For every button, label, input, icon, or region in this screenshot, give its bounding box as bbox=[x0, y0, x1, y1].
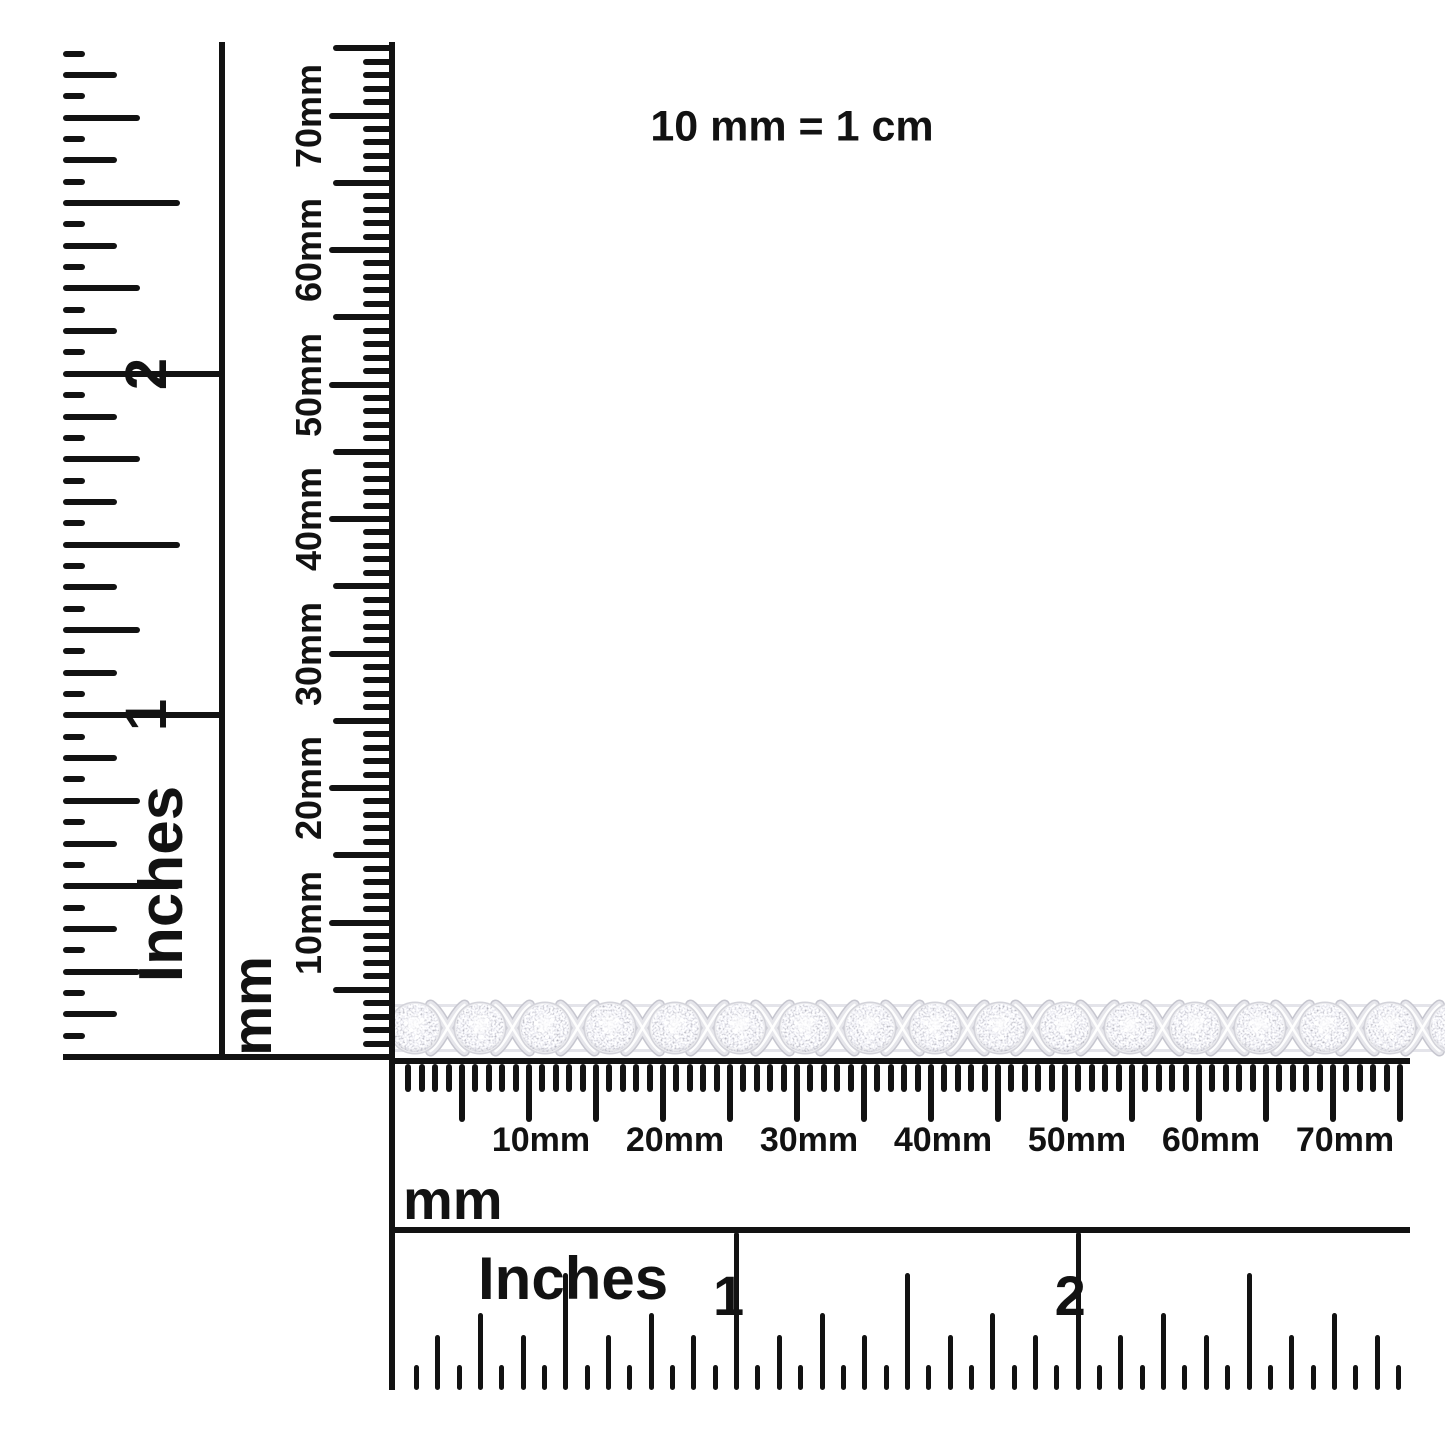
ruler-tick bbox=[1182, 1365, 1187, 1390]
ruler-tick bbox=[862, 1335, 867, 1390]
inch-number: 1 bbox=[118, 699, 176, 731]
ruler-tick bbox=[1140, 1365, 1145, 1390]
ruler-tick bbox=[798, 1365, 803, 1390]
ruler-tick bbox=[647, 1064, 653, 1092]
mm-tick-label: 50mm bbox=[291, 332, 327, 436]
ruler-tick bbox=[740, 1064, 746, 1092]
ruler-tick bbox=[969, 1365, 974, 1390]
ruler-tick bbox=[767, 1064, 773, 1092]
ruler-tick bbox=[63, 264, 85, 270]
bracelet-cluster bbox=[420, 1018, 424, 1022]
mm-tick-label: 10mm bbox=[492, 1123, 590, 1157]
bracelet-cluster bbox=[870, 1035, 874, 1039]
ruler-tick bbox=[1236, 1064, 1242, 1092]
mm-tick-label: 20mm bbox=[291, 736, 327, 840]
ruler-tick bbox=[459, 1064, 465, 1122]
ruler-tick bbox=[63, 51, 85, 57]
bracelet-cluster bbox=[1395, 1018, 1399, 1022]
ruler-tick bbox=[1225, 1365, 1230, 1390]
bracelet-cluster bbox=[805, 1035, 809, 1039]
ruler-tick bbox=[627, 1365, 632, 1390]
ruler-tick bbox=[1156, 1064, 1162, 1092]
bracelet-cluster bbox=[976, 1004, 1024, 1052]
mm-tick-label: 20mm bbox=[626, 1123, 724, 1157]
mm-tick-label: 30mm bbox=[760, 1123, 858, 1157]
ruler-tick bbox=[478, 1313, 483, 1390]
ruler-tick bbox=[1317, 1064, 1323, 1092]
ruler-tick bbox=[633, 1064, 639, 1092]
bracelet-cluster bbox=[875, 1018, 879, 1022]
ruler-tick bbox=[63, 563, 85, 569]
ruler-tick bbox=[472, 1064, 478, 1092]
ruler-tick bbox=[414, 1365, 419, 1390]
bracelet-cluster bbox=[1135, 1018, 1139, 1022]
bracelet-cluster bbox=[651, 1004, 699, 1052]
bracelet-cluster bbox=[1366, 1004, 1414, 1052]
ruler-tick bbox=[513, 1064, 519, 1092]
ruler-tick bbox=[888, 1064, 894, 1092]
ruler-tick bbox=[1311, 1365, 1316, 1390]
ruler-tick bbox=[1370, 1064, 1376, 1092]
bracelet-cluster bbox=[485, 1018, 489, 1022]
mm-tick-label: 60mm bbox=[291, 198, 327, 302]
ruler-tick bbox=[457, 1365, 462, 1390]
ruler-tick bbox=[948, 1335, 953, 1390]
bracelet-cluster bbox=[1195, 1035, 1199, 1039]
bracelet-cluster bbox=[480, 1035, 484, 1039]
ruler-tick bbox=[63, 435, 85, 441]
bracelet-cluster bbox=[729, 1021, 733, 1025]
ruler-tick bbox=[63, 478, 85, 484]
diamond-bracelet-image bbox=[395, 998, 1445, 1058]
mm-tick-label: 70mm bbox=[291, 63, 327, 167]
ruler-tick bbox=[1035, 1064, 1041, 1092]
bracelet-cluster bbox=[675, 1035, 679, 1039]
ruler-tick bbox=[1268, 1365, 1273, 1390]
ruler-tick bbox=[1353, 1365, 1358, 1390]
bracelet-cluster bbox=[859, 1021, 863, 1025]
ruler-tick bbox=[1033, 1335, 1038, 1390]
ruler-tick bbox=[1397, 1064, 1403, 1122]
ruler-tick bbox=[539, 1064, 545, 1092]
ruler-tick bbox=[1357, 1064, 1363, 1092]
bracelet-cluster bbox=[929, 1028, 933, 1032]
ruler-edge bbox=[219, 42, 225, 1057]
mm-tick-label: 40mm bbox=[291, 467, 327, 571]
ruler-tick bbox=[63, 606, 85, 612]
ruler-tick bbox=[670, 1365, 675, 1390]
ruler-tick bbox=[63, 734, 85, 740]
inch-number: 1 bbox=[713, 1268, 744, 1324]
ruler-tick bbox=[63, 221, 85, 227]
ruler-tick bbox=[820, 1313, 825, 1390]
ruler-tick bbox=[333, 718, 393, 724]
ruler-tick bbox=[755, 1365, 760, 1390]
bracelet-cluster bbox=[781, 1004, 829, 1052]
bracelet-cluster bbox=[456, 1004, 504, 1052]
bracelet-cluster bbox=[550, 1018, 554, 1022]
ruler-tick bbox=[63, 627, 140, 633]
bracelet-cluster bbox=[1254, 1028, 1258, 1032]
ruler-tick bbox=[521, 1335, 526, 1390]
ruler-tick bbox=[1263, 1064, 1269, 1122]
ruler-tick bbox=[63, 862, 85, 868]
ruler-tick bbox=[1204, 1335, 1209, 1390]
ruler-tick bbox=[63, 136, 85, 142]
ruler-tick bbox=[63, 200, 180, 206]
ruler-tick bbox=[63, 307, 85, 313]
ruler-tick bbox=[329, 247, 393, 253]
bracelet-cluster bbox=[716, 1004, 764, 1052]
ruler-tick bbox=[63, 93, 85, 99]
bracelet-cluster bbox=[1171, 1004, 1219, 1052]
ruler-tick bbox=[566, 1064, 572, 1092]
ruler-tick bbox=[333, 180, 393, 186]
inch-number: 2 bbox=[1055, 1268, 1086, 1324]
ruler-tick bbox=[1118, 1335, 1123, 1390]
ruler-tick bbox=[714, 1064, 720, 1092]
bracelet-cluster bbox=[734, 1028, 738, 1032]
ruler-tick bbox=[419, 1064, 425, 1092]
bracelet-cluster bbox=[745, 1018, 749, 1022]
bracelet-cluster bbox=[534, 1021, 538, 1025]
ruler-tick bbox=[874, 1064, 880, 1092]
bracelet-cluster bbox=[810, 1018, 814, 1022]
measurement-image: 10 mm = 1 cm 12 10mm20mm30mm40mm50mm60mm… bbox=[0, 0, 1445, 1445]
ruler-tick bbox=[333, 449, 393, 455]
bracelet-cluster bbox=[1054, 1021, 1058, 1025]
ruler-tick bbox=[673, 1064, 679, 1092]
ruler-tick bbox=[63, 499, 117, 505]
ruler-tick bbox=[1097, 1365, 1102, 1390]
bracelet-cluster bbox=[610, 1035, 614, 1039]
ruler-tick bbox=[1008, 1064, 1014, 1092]
bracelet-cluster bbox=[1000, 1035, 1004, 1039]
ruler-tick bbox=[63, 349, 85, 355]
bracelet-cluster bbox=[539, 1028, 543, 1032]
ruler-tick bbox=[333, 314, 393, 320]
ruler-tick bbox=[713, 1365, 718, 1390]
bracelet-cluster bbox=[740, 1035, 744, 1039]
bracelet-cluster bbox=[1390, 1035, 1394, 1039]
ruler-tick bbox=[754, 1064, 760, 1092]
ruler-tick bbox=[1183, 1064, 1189, 1092]
ruler-edge bbox=[389, 1227, 1410, 1233]
ruler-tick bbox=[1196, 1064, 1202, 1122]
ruler-tick bbox=[63, 328, 117, 334]
ruler-tick bbox=[1049, 1064, 1055, 1092]
ruler-tick bbox=[982, 1064, 988, 1092]
ruler-tick bbox=[941, 1064, 947, 1092]
bracelet-cluster bbox=[669, 1028, 673, 1032]
ruler-tick bbox=[905, 1273, 910, 1390]
ruler-tick bbox=[1075, 1064, 1081, 1092]
ruler-tick bbox=[329, 113, 393, 119]
mm-tick-label: 30mm bbox=[291, 601, 327, 705]
ruler-tick bbox=[606, 1064, 612, 1092]
bracelet-cluster bbox=[604, 1028, 608, 1032]
bracelet-cluster bbox=[994, 1028, 998, 1032]
ruler-tick bbox=[333, 45, 393, 51]
ruler-tick bbox=[990, 1313, 995, 1390]
mm-tick-label: 10mm bbox=[291, 870, 327, 974]
ruler-tick bbox=[435, 1335, 440, 1390]
ruler-tick bbox=[915, 1064, 921, 1092]
ruler-tick bbox=[405, 1064, 411, 1092]
bracelet-cluster bbox=[1189, 1028, 1193, 1032]
bracelet-cluster bbox=[924, 1021, 928, 1025]
ruler-tick bbox=[63, 1033, 85, 1039]
bracelet-cluster bbox=[1200, 1018, 1204, 1022]
ruler-tick bbox=[955, 1064, 961, 1092]
inches-unit-label-vertical: Inches bbox=[131, 786, 193, 982]
bracelet-cluster bbox=[864, 1028, 868, 1032]
ruler-tick bbox=[63, 947, 85, 953]
ruler-tick bbox=[63, 115, 140, 121]
mm-unit-label-vertical: mm bbox=[224, 956, 280, 1056]
ruler-tick bbox=[63, 392, 85, 398]
bracelet-cluster bbox=[680, 1018, 684, 1022]
ruler-tick bbox=[63, 691, 85, 697]
bracelet-cluster bbox=[469, 1021, 473, 1025]
bracelet-cluster bbox=[1119, 1021, 1123, 1025]
ruler-tick bbox=[1396, 1365, 1401, 1390]
ruler-tick bbox=[700, 1064, 706, 1092]
mm-tick-label: 60mm bbox=[1162, 1123, 1260, 1157]
ruler-tick bbox=[1116, 1064, 1122, 1092]
ruler-tick bbox=[687, 1064, 693, 1092]
bracelet-cluster bbox=[794, 1021, 798, 1025]
ruler-edge bbox=[389, 1058, 1410, 1064]
ruler-tick bbox=[1303, 1064, 1309, 1092]
bracelet-cluster bbox=[1379, 1021, 1383, 1025]
ruler-tick bbox=[329, 651, 393, 657]
ruler-tick bbox=[848, 1064, 854, 1092]
ruler-tick bbox=[1142, 1064, 1148, 1092]
ruler-tick bbox=[649, 1313, 654, 1390]
ruler-tick bbox=[63, 905, 85, 911]
bracelet-cluster bbox=[1041, 1004, 1089, 1052]
ruler-tick bbox=[660, 1064, 666, 1122]
bracelet-cluster bbox=[474, 1028, 478, 1032]
ruler-tick bbox=[499, 1365, 504, 1390]
bracelet-cluster bbox=[935, 1035, 939, 1039]
ruler-tick bbox=[821, 1064, 827, 1092]
bracelet-cluster bbox=[1384, 1028, 1388, 1032]
ruler-tick bbox=[63, 819, 85, 825]
bracelet-cluster bbox=[615, 1018, 619, 1022]
bracelet-cluster bbox=[409, 1028, 413, 1032]
ruler-tick bbox=[63, 990, 85, 996]
bracelet-cluster bbox=[404, 1021, 408, 1025]
ruler-tick bbox=[1330, 1064, 1336, 1122]
bracelet-cluster bbox=[1265, 1018, 1269, 1022]
ruler-tick bbox=[63, 648, 85, 654]
bracelet-cluster bbox=[1124, 1028, 1128, 1032]
ruler-tick bbox=[63, 520, 85, 526]
ruler-tick bbox=[727, 1064, 733, 1122]
ruler-tick bbox=[1169, 1064, 1175, 1092]
ruler-tick bbox=[63, 179, 85, 185]
ruler-tick bbox=[1012, 1365, 1017, 1390]
bracelet-cluster bbox=[1330, 1018, 1334, 1022]
ruler-tick bbox=[1250, 1064, 1256, 1092]
ruler-tick bbox=[63, 72, 117, 78]
bracelet-cluster bbox=[1314, 1021, 1318, 1025]
ruler-tick bbox=[63, 755, 117, 761]
ruler-tick bbox=[329, 785, 393, 791]
bracelet-cluster bbox=[415, 1035, 419, 1039]
ruler-tick bbox=[63, 285, 140, 291]
ruler-tick bbox=[63, 841, 117, 847]
ruler-tick bbox=[995, 1064, 1001, 1122]
ruler-tick bbox=[777, 1335, 782, 1390]
ruler-tick bbox=[329, 920, 393, 926]
ruler-tick bbox=[926, 1365, 931, 1390]
bracelet-cluster bbox=[911, 1004, 959, 1052]
inches-unit-label-horizontal: Inches bbox=[478, 1249, 668, 1309]
bracelet-cluster bbox=[586, 1004, 634, 1052]
bracelet-cluster bbox=[1319, 1028, 1323, 1032]
ruler-tick bbox=[63, 584, 117, 590]
ruler-tick bbox=[1332, 1313, 1337, 1390]
ruler-tick bbox=[63, 157, 117, 163]
ruler-tick bbox=[593, 1064, 599, 1122]
bracelet-cluster bbox=[545, 1035, 549, 1039]
ruler-tick bbox=[63, 456, 140, 462]
inch-number: 2 bbox=[118, 358, 176, 390]
ruler-tick bbox=[834, 1064, 840, 1092]
ruler-tick bbox=[1375, 1335, 1380, 1390]
ruler-tick bbox=[1089, 1064, 1095, 1092]
ruler-tick bbox=[585, 1365, 590, 1390]
ruler-tick bbox=[1247, 1273, 1252, 1390]
ruler-tick bbox=[1343, 1064, 1349, 1092]
ruler-tick bbox=[580, 1064, 586, 1092]
ruler-tick bbox=[329, 516, 393, 522]
bracelet-cluster bbox=[940, 1018, 944, 1022]
bracelet-cluster bbox=[664, 1021, 668, 1025]
ruler-tick bbox=[333, 987, 393, 993]
ruler-tick bbox=[794, 1064, 800, 1122]
ruler-tick bbox=[606, 1335, 611, 1390]
bracelet-cluster bbox=[1065, 1035, 1069, 1039]
ruler-tick bbox=[841, 1365, 846, 1390]
bracelet-cluster bbox=[521, 1004, 569, 1052]
ruler-tick bbox=[1129, 1064, 1135, 1122]
ruler-tick bbox=[928, 1064, 934, 1122]
ruler-tick bbox=[63, 243, 117, 249]
ruler-tick bbox=[1209, 1064, 1215, 1092]
ruler-tick bbox=[63, 776, 85, 782]
bracelet-cluster bbox=[1236, 1004, 1284, 1052]
bracelet-cluster bbox=[1106, 1004, 1154, 1052]
bracelet-cluster bbox=[599, 1021, 603, 1025]
ruler-tick bbox=[333, 852, 393, 858]
ruler-tick bbox=[446, 1064, 452, 1092]
ruler-tick bbox=[486, 1064, 492, 1092]
ruler-tick bbox=[63, 1011, 117, 1017]
bracelet-cluster bbox=[799, 1028, 803, 1032]
ruler-tick bbox=[1276, 1064, 1282, 1092]
ruler-tick bbox=[1289, 1335, 1294, 1390]
bracelet-cluster bbox=[1070, 1018, 1074, 1022]
ruler-tick bbox=[1054, 1365, 1059, 1390]
ruler-tick bbox=[884, 1365, 889, 1390]
ruler-tick bbox=[526, 1064, 532, 1122]
scale-note: 10 mm = 1 cm bbox=[650, 106, 933, 149]
bracelet-cluster bbox=[1325, 1035, 1329, 1039]
ruler-tick bbox=[329, 382, 393, 388]
ruler-tick bbox=[333, 583, 393, 589]
bracelet-cluster bbox=[1005, 1018, 1009, 1022]
bracelet-cluster bbox=[1301, 1004, 1349, 1052]
ruler-tick bbox=[499, 1064, 505, 1092]
ruler-tick bbox=[1290, 1064, 1296, 1092]
mm-unit-label-horizontal: mm bbox=[403, 1172, 503, 1228]
ruler-tick bbox=[807, 1064, 813, 1092]
mm-tick-label: 40mm bbox=[894, 1123, 992, 1157]
ruler-tick bbox=[1384, 1064, 1390, 1092]
ruler-tick bbox=[542, 1365, 547, 1390]
bracelet-cluster bbox=[1249, 1021, 1253, 1025]
ruler-tick bbox=[1062, 1064, 1068, 1122]
mm-tick-label: 70mm bbox=[1296, 1123, 1394, 1157]
ruler-tick bbox=[781, 1064, 787, 1092]
bracelet-cluster bbox=[989, 1021, 993, 1025]
ruler-tick bbox=[861, 1064, 867, 1122]
ruler-tick bbox=[63, 926, 117, 932]
bracelet-cluster bbox=[1130, 1035, 1134, 1039]
ruler-tick bbox=[1102, 1064, 1108, 1092]
ruler-tick bbox=[620, 1064, 626, 1092]
ruler-tick bbox=[63, 670, 117, 676]
bracelet-cluster bbox=[1184, 1021, 1188, 1025]
ruler-tick bbox=[63, 542, 180, 548]
ruler-tick bbox=[432, 1064, 438, 1092]
mm-tick-label: 50mm bbox=[1028, 1123, 1126, 1157]
ruler-tick bbox=[691, 1335, 696, 1390]
bracelet-cluster bbox=[1059, 1028, 1063, 1032]
ruler-edge bbox=[389, 42, 395, 1390]
ruler-tick bbox=[1022, 1064, 1028, 1092]
ruler-tick bbox=[901, 1064, 907, 1092]
ruler-tick bbox=[63, 414, 117, 420]
ruler-tick bbox=[553, 1064, 559, 1092]
ruler-tick bbox=[968, 1064, 974, 1092]
bracelet-cluster bbox=[846, 1004, 894, 1052]
ruler-tick bbox=[1161, 1313, 1166, 1390]
bracelet-cluster bbox=[1260, 1035, 1264, 1039]
ruler-tick bbox=[1223, 1064, 1229, 1092]
